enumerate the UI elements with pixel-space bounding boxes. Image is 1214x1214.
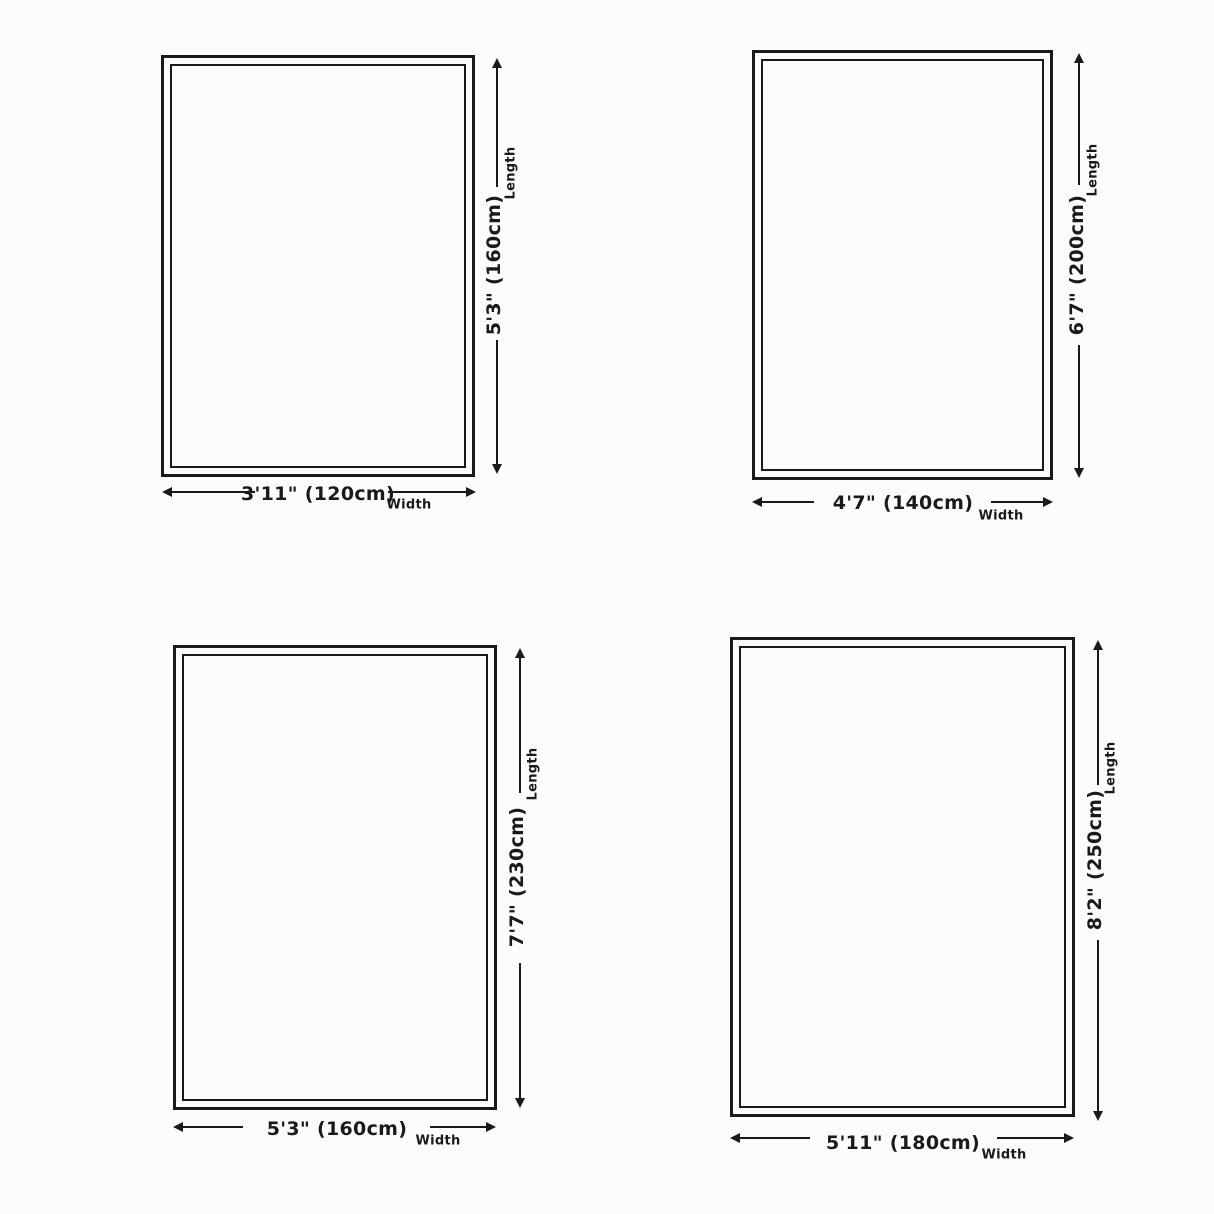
length-value: 5'3" (160cm) xyxy=(483,195,505,335)
length-caption: Length xyxy=(526,748,541,801)
width-arrow-left-icon xyxy=(761,501,814,503)
rug-outline xyxy=(173,645,497,1110)
length-caption: Length xyxy=(504,147,519,200)
width-caption: Width xyxy=(386,498,431,513)
length-value: 6'7" (200cm) xyxy=(1066,195,1088,335)
length-arrow-up-icon xyxy=(519,657,521,793)
width-value: 3'11" (120cm) xyxy=(241,483,395,505)
width-value: 5'11" (180cm) xyxy=(826,1132,980,1154)
width-caption: Width xyxy=(981,1148,1026,1163)
rug-inner-outline xyxy=(739,646,1066,1108)
rug-size-diagram: Length 5'3" (160cm) 3'11" (120cm) Width … xyxy=(0,0,1214,1214)
width-value: 4'7" (140cm) xyxy=(833,492,973,514)
length-arrow-down-icon xyxy=(519,963,521,1099)
rug-outline xyxy=(730,637,1075,1117)
width-caption: Width xyxy=(978,509,1023,524)
length-arrow-down-icon xyxy=(1097,940,1099,1112)
rug-panel-160x230: Length 7'7" (230cm) 5'3" (160cm) Width xyxy=(173,645,558,1155)
length-value: 8'2" (250cm) xyxy=(1084,790,1106,930)
width-arrow-right-icon xyxy=(388,491,467,493)
length-arrow-up-icon xyxy=(496,67,498,187)
length-arrow-up-icon xyxy=(1078,62,1080,185)
width-caption: Width xyxy=(415,1134,460,1149)
width-arrow-right-icon xyxy=(991,501,1044,503)
rug-panel-120x160: Length 5'3" (160cm) 3'11" (120cm) Width xyxy=(161,55,541,525)
rug-panel-180x250: Length 8'2" (250cm) 5'11" (180cm) Width xyxy=(730,637,1120,1167)
rug-inner-outline xyxy=(761,59,1044,471)
length-arrow-down-icon xyxy=(496,340,498,465)
width-arrow-right-icon xyxy=(997,1137,1065,1139)
rug-outline xyxy=(752,50,1053,480)
width-value: 5'3" (160cm) xyxy=(267,1118,407,1140)
length-arrow-down-icon xyxy=(1078,345,1080,469)
rug-panel-140x200: Length 6'7" (200cm) 4'7" (140cm) Width xyxy=(752,50,1127,530)
rug-inner-outline xyxy=(170,64,466,468)
width-arrow-left-icon xyxy=(739,1137,810,1139)
rug-outline xyxy=(161,55,475,477)
width-arrow-left-icon xyxy=(182,1126,243,1128)
length-caption: Length xyxy=(1086,144,1101,197)
length-caption: Length xyxy=(1104,742,1119,795)
width-arrow-right-icon xyxy=(430,1126,487,1128)
length-arrow-up-icon xyxy=(1097,649,1099,785)
rug-inner-outline xyxy=(182,654,488,1101)
length-value: 7'7" (230cm) xyxy=(506,807,528,947)
